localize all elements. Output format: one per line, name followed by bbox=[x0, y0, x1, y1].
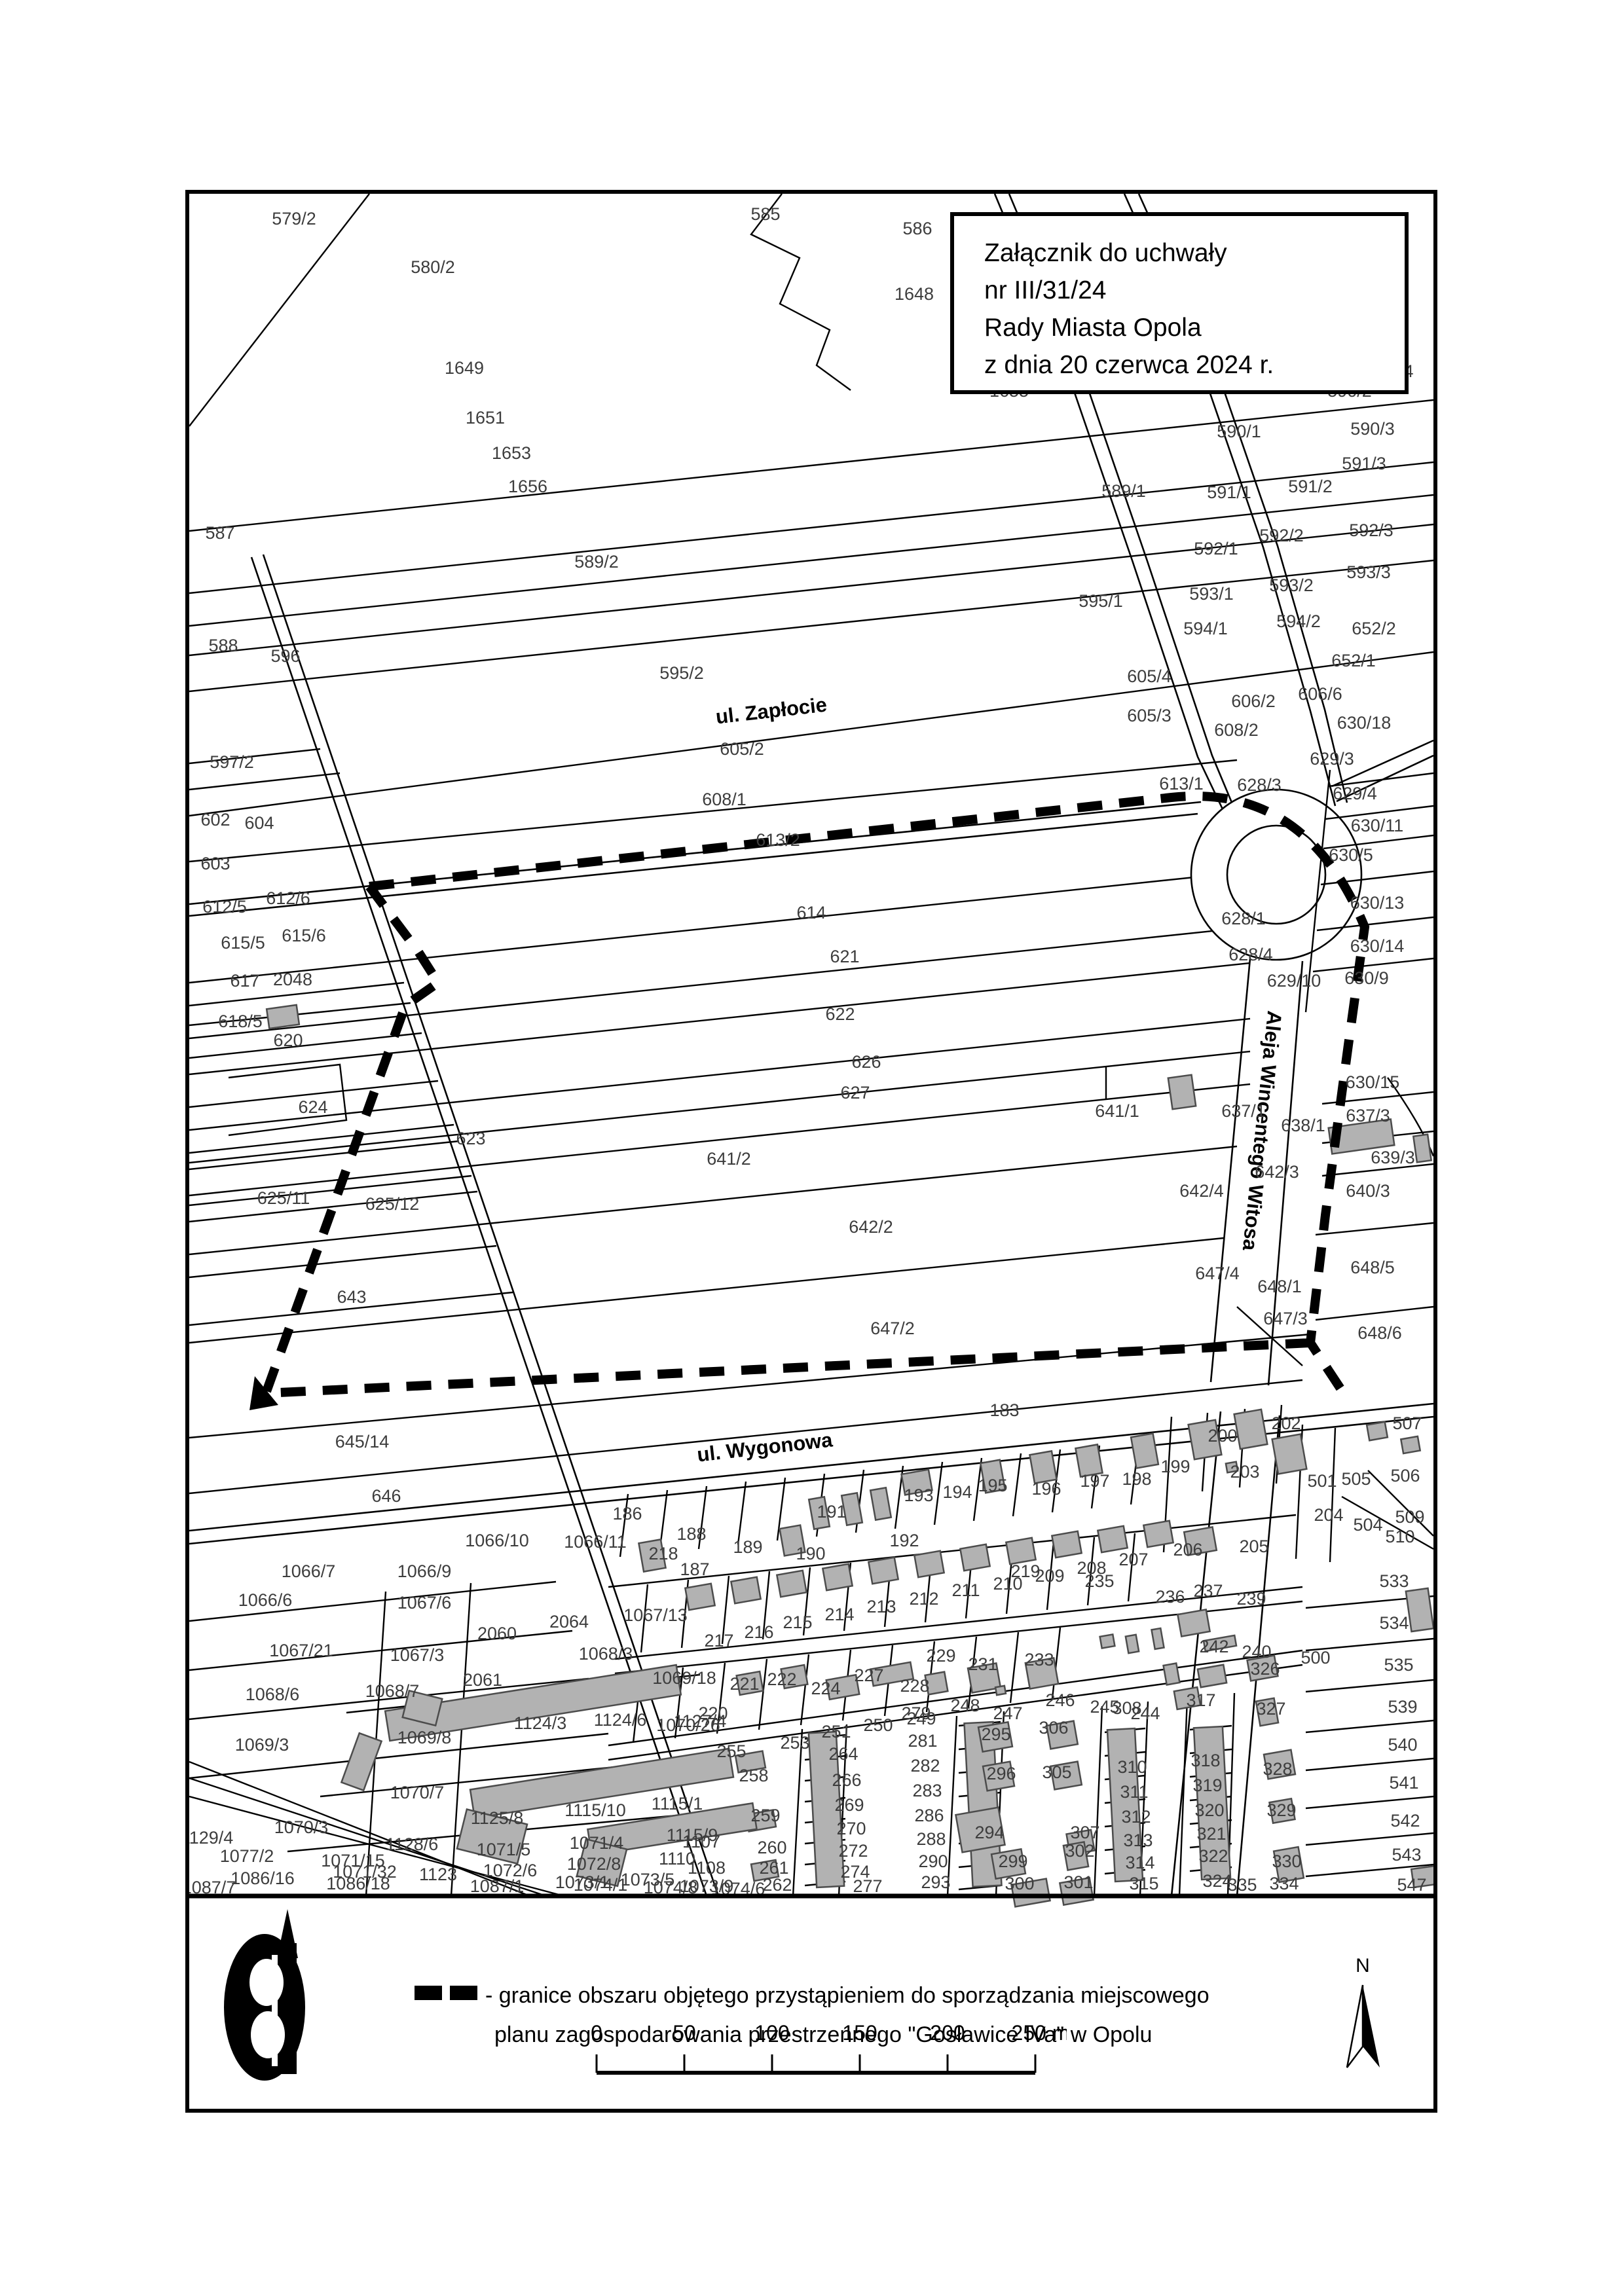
parcel-label: 322 bbox=[1198, 1846, 1228, 1866]
legend-line1: - granice obszaru objętego przystąpienie… bbox=[485, 1976, 1310, 2015]
parcel-label: 1123 bbox=[419, 1865, 457, 1884]
north-arrow-right bbox=[1363, 1985, 1380, 2068]
parcel-label: 222 bbox=[767, 1669, 796, 1689]
parcel-label: 259 bbox=[750, 1806, 780, 1825]
parcel-label: 313 bbox=[1123, 1831, 1153, 1850]
parcel-label: 592/1 bbox=[1194, 539, 1238, 558]
parcel-label: 614 bbox=[796, 903, 826, 922]
parcel-label: 637/3 bbox=[1346, 1106, 1390, 1125]
parcel-label: 645/14 bbox=[335, 1432, 390, 1451]
parcel-label: 605/2 bbox=[720, 739, 764, 759]
parcel-label: 319 bbox=[1192, 1776, 1222, 1795]
parcel-label: 235 bbox=[1084, 1571, 1114, 1591]
parcel-label: 594/1 bbox=[1183, 619, 1228, 638]
parcel-label: 647/4 bbox=[1195, 1264, 1240, 1283]
parcel-label: 1068/3 bbox=[579, 1644, 633, 1664]
parcel-label: 606/2 bbox=[1231, 691, 1276, 711]
parcel-label: 621 bbox=[830, 947, 859, 966]
parcel-label: 321 bbox=[1196, 1824, 1226, 1844]
parcel-label: 2048 bbox=[273, 970, 312, 989]
parcel-label: 1067/3 bbox=[390, 1645, 445, 1665]
parcel-label: 579/2 bbox=[272, 209, 316, 228]
parcel-label: 314 bbox=[1125, 1853, 1154, 1872]
parcel-label: 283 bbox=[912, 1781, 942, 1800]
parcel-label: 189 bbox=[733, 1537, 762, 1557]
parcel-label: 1124/3 bbox=[514, 1713, 567, 1733]
parcel-label: 624 bbox=[298, 1097, 327, 1117]
parcel-label: 250 bbox=[863, 1715, 893, 1735]
parcel-label: 1070/7 bbox=[390, 1783, 445, 1802]
parcel-label: 305 bbox=[1042, 1762, 1071, 1782]
parcel-label: 630/11 bbox=[1351, 816, 1404, 835]
parcel-label: 630/18 bbox=[1337, 713, 1392, 733]
parcel-label: 1067/21 bbox=[269, 1641, 333, 1660]
parcel-label: 629/3 bbox=[1310, 749, 1354, 769]
roads bbox=[189, 194, 1433, 1896]
map-canvas: ul. Zapłocieul. WygonowaAleja Wincentego… bbox=[189, 194, 1433, 2109]
parcel-label: 218 bbox=[648, 1544, 678, 1563]
parcel-label: 591/2 bbox=[1288, 477, 1333, 496]
parcel-label: 630/15 bbox=[1346, 1072, 1400, 1092]
parcel-label: 589/2 bbox=[574, 552, 619, 572]
parcel-label: 1071/4 bbox=[570, 1833, 624, 1853]
parcel-label: 197 bbox=[1080, 1471, 1109, 1491]
parcel-label: 296 bbox=[986, 1764, 1016, 1783]
parcel-label: 335 bbox=[1227, 1875, 1257, 1895]
title-line: z dnia 20 czerwca 2024 r. bbox=[984, 346, 1392, 384]
parcel-label: 504 bbox=[1353, 1515, 1382, 1535]
parcel-label: 628/4 bbox=[1228, 945, 1273, 964]
parcel-label: 1066/6 bbox=[238, 1590, 293, 1610]
parcel-label: 603 bbox=[200, 854, 230, 873]
parcel-label: 585 bbox=[750, 204, 780, 224]
parcel-label: 602 bbox=[200, 810, 230, 829]
parcel-label: 272 bbox=[838, 1841, 868, 1861]
parcel-label: 219 bbox=[1010, 1561, 1040, 1581]
parcel-label: 237 bbox=[1193, 1581, 1223, 1601]
parcel-label: 317 bbox=[1186, 1690, 1215, 1710]
parcel-label: 1068/6 bbox=[246, 1685, 300, 1704]
north-arrow: N bbox=[1329, 1955, 1407, 2079]
parcel-label: 638/1 bbox=[1281, 1116, 1325, 1135]
parcel-label: 646 bbox=[371, 1486, 401, 1506]
parcel-label: 647/3 bbox=[1263, 1309, 1308, 1328]
parcel-label: 648/1 bbox=[1257, 1277, 1302, 1296]
parcel-label: 591/3 bbox=[1342, 454, 1386, 473]
parcel-label: 264 bbox=[828, 1744, 858, 1764]
parcel-label: 1648 bbox=[895, 284, 934, 304]
scale-ticks bbox=[597, 2054, 1035, 2073]
parcel-label: 623 bbox=[456, 1129, 485, 1148]
parcel-label: 612/6 bbox=[266, 888, 310, 908]
parcel-label: 540 bbox=[1388, 1735, 1417, 1755]
page: { "title_box": { "lines": ["Załącznik do… bbox=[0, 0, 1624, 2296]
parcel-label: 606/6 bbox=[1298, 684, 1342, 704]
parcel-label: 1074/1 bbox=[574, 1875, 628, 1895]
parcel-label: 543 bbox=[1392, 1845, 1421, 1865]
parcel-label: 192 bbox=[889, 1531, 919, 1550]
parcel-label: 266 bbox=[832, 1770, 861, 1790]
parcel-label: 1069/18 bbox=[652, 1668, 716, 1688]
parcel-label: 242 bbox=[1199, 1637, 1228, 1656]
parcel-label: 1066/11 bbox=[564, 1532, 627, 1552]
parcel-label: 629/4 bbox=[1333, 784, 1377, 803]
parcel-label: 628/1 bbox=[1221, 909, 1266, 928]
parcel-label: 293 bbox=[921, 1872, 950, 1892]
parcel-label: 1086/16 bbox=[231, 1868, 295, 1888]
parcel-label: 307 bbox=[1070, 1823, 1099, 1842]
parcel-label: 246 bbox=[1045, 1690, 1075, 1710]
parcel-label: 247 bbox=[993, 1704, 1022, 1723]
parcel-label: 207 bbox=[1118, 1550, 1148, 1569]
parcel-label: 233 bbox=[1024, 1650, 1054, 1669]
parcel-label: 302 bbox=[1065, 1841, 1094, 1861]
parcel-label: 593/2 bbox=[1269, 575, 1314, 595]
parcel-label: 1087/1 bbox=[470, 1876, 525, 1896]
parcel-label: 196 bbox=[1031, 1479, 1061, 1499]
parcel-label: 215 bbox=[783, 1613, 812, 1632]
parcel-label: 625/11 bbox=[257, 1188, 310, 1208]
parcel-label: 310 bbox=[1117, 1757, 1147, 1777]
parcel-label: 652/2 bbox=[1352, 619, 1396, 638]
north-arrow-left bbox=[1347, 1985, 1363, 2068]
parcel-label: 308 bbox=[1112, 1698, 1141, 1718]
parcel-label: 202 bbox=[1271, 1413, 1301, 1433]
parcel-label: 212 bbox=[909, 1589, 938, 1609]
parcel-label: 587 bbox=[205, 523, 234, 543]
parcel-label: 595/2 bbox=[659, 663, 704, 683]
parcel-label: 604 bbox=[244, 813, 274, 833]
parcel-label: 279 bbox=[901, 1704, 931, 1723]
parcel-label: 1653 bbox=[492, 443, 531, 463]
parcel-label: 191 bbox=[817, 1502, 846, 1522]
parcel-label: 1115/10 bbox=[564, 1800, 626, 1820]
parcel-label: 617 bbox=[230, 971, 259, 991]
parcel-label: 193 bbox=[904, 1485, 933, 1505]
parcel-label: 258 bbox=[739, 1766, 768, 1785]
parcel-label: 330 bbox=[1272, 1851, 1301, 1871]
parcel-label: 612/5 bbox=[202, 897, 247, 917]
parcel-label: 1115/1 bbox=[652, 1794, 703, 1813]
parcel-label: 642/4 bbox=[1179, 1181, 1224, 1201]
parcel-label: 620 bbox=[273, 1030, 303, 1050]
street-labels: ul. Zapłocieul. WygonowaAleja Wincentego… bbox=[696, 693, 1286, 1467]
parcel-label: 626 bbox=[851, 1052, 881, 1072]
parcel-label: 270 bbox=[836, 1819, 866, 1838]
parcel-label: 262 bbox=[762, 1875, 792, 1895]
parcel-label: 534 bbox=[1379, 1613, 1409, 1633]
parcel-label: 190 bbox=[796, 1544, 825, 1563]
parcel-label: 312 bbox=[1121, 1807, 1151, 1827]
parcel-label: 224 bbox=[811, 1679, 840, 1698]
parcel-label: 592/3 bbox=[1349, 520, 1393, 540]
parcel-label: 630/14 bbox=[1350, 936, 1405, 956]
parcel-label: 507 bbox=[1392, 1413, 1422, 1433]
parcel-label: 326 bbox=[1250, 1659, 1280, 1679]
parcel-label: 640/3 bbox=[1346, 1181, 1390, 1201]
parcel-label: 255 bbox=[716, 1741, 746, 1761]
parcel-label: 2060 bbox=[477, 1624, 517, 1643]
parcel-label: 2064 bbox=[549, 1612, 589, 1631]
parcel-label: 188 bbox=[676, 1524, 706, 1544]
parcel-label: 1651 bbox=[466, 408, 505, 428]
scale-tick-label: 0 bbox=[591, 2021, 602, 2045]
parcel-label: 1067/13 bbox=[623, 1605, 688, 1625]
parcel-label: 294 bbox=[974, 1823, 1004, 1842]
parcel-label: 506 bbox=[1390, 1466, 1420, 1485]
parcel-label: 1656 bbox=[508, 477, 547, 496]
parcel-label: 200 bbox=[1208, 1426, 1237, 1446]
parcel-label: 1086/18 bbox=[326, 1874, 390, 1893]
parcel-label: 1127/4 bbox=[674, 1711, 727, 1731]
parcel-label: 509 bbox=[1395, 1507, 1424, 1527]
parcel-label: 596 bbox=[270, 646, 300, 666]
parcel-label: 588 bbox=[208, 636, 238, 655]
parcel-label: 214 bbox=[824, 1605, 854, 1624]
parcel-label: 590/3 bbox=[1350, 419, 1395, 439]
parcel-label: 613/2 bbox=[756, 830, 800, 850]
parcel-label: 1069/8 bbox=[397, 1728, 452, 1747]
parcel-label: 1124/6 bbox=[594, 1710, 647, 1730]
parcel-label: 213 bbox=[866, 1597, 896, 1616]
parcel-label: 281 bbox=[908, 1731, 937, 1751]
scale-tick-label: 150 bbox=[842, 2021, 877, 2045]
parcel-label: 329 bbox=[1266, 1800, 1296, 1820]
parcel-label: 539 bbox=[1388, 1697, 1417, 1717]
parcel-label: 622 bbox=[825, 1004, 855, 1024]
parcel-label: 236 bbox=[1155, 1587, 1185, 1607]
parcel-label: 195 bbox=[978, 1476, 1007, 1495]
parcel-label: 299 bbox=[998, 1851, 1027, 1871]
parcel-label: 1071/5 bbox=[477, 1840, 531, 1859]
parcel-label: 269 bbox=[834, 1795, 864, 1815]
parcel-label: 641/2 bbox=[707, 1149, 751, 1169]
parcel-label: 618/5 bbox=[218, 1011, 263, 1031]
parcel-label: 205 bbox=[1239, 1537, 1268, 1556]
parcel-label: 533 bbox=[1379, 1571, 1409, 1591]
parcel-label: 605/3 bbox=[1127, 706, 1172, 725]
parcel-label: 327 bbox=[1256, 1699, 1285, 1719]
logo bbox=[224, 1909, 305, 2081]
parcel-label: 328 bbox=[1263, 1759, 1292, 1779]
parcel-label: 641/1 bbox=[1095, 1101, 1139, 1121]
parcel-label: 625/12 bbox=[365, 1194, 420, 1214]
parcel-label: 642/2 bbox=[849, 1217, 893, 1237]
parcel-label: 639/3 bbox=[1371, 1148, 1415, 1167]
parcel-label: 1649 bbox=[445, 358, 484, 378]
north-label: N bbox=[1356, 1955, 1370, 1977]
parcel-label: 1067/6 bbox=[397, 1593, 452, 1613]
parcel-label: 306 bbox=[1039, 1718, 1068, 1738]
parcel-label: 228 bbox=[900, 1676, 929, 1696]
street-label: ul. Zapłocie bbox=[714, 693, 828, 729]
parcel-label: 594/2 bbox=[1276, 611, 1321, 631]
parcel-label: 206 bbox=[1173, 1540, 1202, 1559]
parcel-label: 589/1 bbox=[1101, 481, 1146, 501]
parcel-label: 593/3 bbox=[1346, 562, 1391, 582]
parcel-label: 300 bbox=[1005, 1874, 1034, 1893]
parcel-label: 593/1 bbox=[1189, 584, 1234, 604]
legend-dash-icon bbox=[415, 1986, 442, 2000]
parcel-label: 211 bbox=[951, 1580, 980, 1600]
parcel-label: 648/6 bbox=[1357, 1323, 1402, 1343]
parcel-label: 221 bbox=[729, 1674, 759, 1694]
parcel-label: 183 bbox=[989, 1400, 1019, 1420]
parcel-label: 334 bbox=[1269, 1874, 1299, 1893]
parcel-label: 227 bbox=[854, 1666, 883, 1685]
parcel-label: 260 bbox=[757, 1838, 786, 1857]
street-label: Aleja Wincentego Witosa bbox=[1238, 1010, 1286, 1252]
parcel-label: 286 bbox=[914, 1806, 944, 1825]
parcel-label: 542 bbox=[1390, 1811, 1420, 1831]
parcel-label: 501 bbox=[1307, 1471, 1337, 1491]
parcel-label: 318 bbox=[1190, 1751, 1220, 1770]
parcel-label: 311 bbox=[1120, 1782, 1148, 1802]
map-frame: ul. Zapłocieul. WygonowaAleja Wincentego… bbox=[185, 190, 1437, 2113]
parcel-label: 1070/3 bbox=[274, 1817, 329, 1837]
scale-tick-label: 50 bbox=[673, 2021, 696, 2045]
title-line: Rady Miasta Opola bbox=[984, 309, 1392, 346]
parcel-label: 510 bbox=[1385, 1527, 1414, 1546]
parcel-label: 315 bbox=[1129, 1874, 1158, 1893]
parcel-label: 597/2 bbox=[210, 752, 254, 772]
parcel-label: 615/5 bbox=[221, 933, 265, 953]
parcel-label: 608/2 bbox=[1214, 720, 1259, 740]
parcel-label: 204 bbox=[1314, 1505, 1343, 1525]
parcel-label: 248 bbox=[950, 1696, 980, 1715]
parcel-label: 1108 bbox=[688, 1858, 726, 1878]
parcel-label: 580/2 bbox=[411, 257, 455, 277]
parcel-label: 590/1 bbox=[1217, 422, 1261, 441]
parcel-label: 613/1 bbox=[1159, 774, 1204, 793]
parcel-label: 608/1 bbox=[702, 790, 747, 809]
parcel-label: 630/5 bbox=[1329, 845, 1373, 865]
legend-dash-icon bbox=[450, 1986, 477, 2000]
parcel-label: 648/5 bbox=[1350, 1258, 1395, 1277]
parcel-label: 642/3 bbox=[1255, 1162, 1299, 1182]
parcel-label: 217 bbox=[704, 1631, 733, 1650]
parcel-label: 500 bbox=[1301, 1648, 1330, 1667]
scale-tick-label: 200 bbox=[930, 2021, 965, 2045]
scale-tick-label: 250 m bbox=[1012, 2021, 1067, 2045]
parcel-label: 199 bbox=[1160, 1457, 1190, 1476]
parcel-label: 605/4 bbox=[1127, 666, 1172, 686]
parcel-label: 1066/7 bbox=[282, 1561, 336, 1581]
parcel-label: 586 bbox=[902, 219, 932, 238]
parcel-label: 628/3 bbox=[1237, 775, 1282, 795]
parcel-label: 652/1 bbox=[1331, 651, 1376, 670]
parcel-label: 301 bbox=[1063, 1872, 1093, 1892]
parcel-label: 320 bbox=[1194, 1800, 1224, 1820]
parcel-label: 1077/2 bbox=[220, 1846, 274, 1866]
parcel-label: 595/1 bbox=[1079, 591, 1123, 611]
parcel-label: 1066/10 bbox=[465, 1531, 529, 1550]
title-line: nr III/31/24 bbox=[984, 272, 1392, 309]
parcel-label: 186 bbox=[612, 1504, 642, 1523]
parcel-label: 630/13 bbox=[1350, 893, 1405, 913]
parcel-label: 288 bbox=[916, 1829, 946, 1849]
parcel-label: 629/10 bbox=[1267, 971, 1321, 991]
parcel-label: 647/2 bbox=[870, 1319, 915, 1338]
parcel-label: 627 bbox=[840, 1083, 870, 1102]
parcel-label: 535 bbox=[1384, 1655, 1413, 1675]
parcel-label: 505 bbox=[1341, 1469, 1371, 1489]
parcel-label: 295 bbox=[981, 1724, 1010, 1744]
parcel-label: 1128/6 bbox=[386, 1834, 439, 1854]
parcel-label: 591/1 bbox=[1207, 483, 1251, 502]
parcel-label: 643 bbox=[337, 1287, 366, 1307]
parcel-label: 1069/3 bbox=[235, 1735, 289, 1755]
parcel-label: 630/9 bbox=[1344, 968, 1389, 988]
parcel-label: 547 bbox=[1397, 1875, 1426, 1895]
parcel-label: 239 bbox=[1236, 1589, 1266, 1609]
parcel-label: 251 bbox=[821, 1722, 851, 1741]
parcel-label: 216 bbox=[744, 1622, 773, 1642]
parcel-label: 2061 bbox=[463, 1670, 502, 1690]
parcel-label: 253 bbox=[780, 1733, 809, 1753]
parcel-label: 615/6 bbox=[282, 926, 326, 945]
parcel-label: 290 bbox=[918, 1851, 948, 1871]
parcel-label: 1125/8 bbox=[471, 1808, 524, 1828]
parcel-label: 187 bbox=[680, 1559, 709, 1579]
parcel-label: 277 bbox=[853, 1876, 882, 1896]
scale-bar: 0 50 100 150 200 250 m bbox=[582, 2020, 1067, 2079]
parcel-label: 282 bbox=[910, 1756, 940, 1776]
street-label: ul. Wygonowa bbox=[696, 1428, 834, 1466]
parcel-label: 198 bbox=[1122, 1469, 1151, 1489]
parcel-label: 1129/4 bbox=[189, 1828, 233, 1848]
parcel-label: 637/1 bbox=[1221, 1101, 1266, 1121]
title-box: Załącznik do uchwały nr III/31/24 Rady M… bbox=[950, 212, 1409, 394]
parcel-label: 229 bbox=[926, 1646, 955, 1666]
parcel-label: 231 bbox=[968, 1654, 997, 1674]
parcel-label: 541 bbox=[1389, 1773, 1418, 1793]
parcel-label: 1072/8 bbox=[567, 1854, 621, 1874]
parcel-label: 1068/7 bbox=[365, 1681, 420, 1701]
parcel-label: 1066/9 bbox=[397, 1561, 452, 1581]
parcel-label: 203 bbox=[1230, 1462, 1259, 1482]
scale-tick-label: 100 bbox=[754, 2021, 789, 2045]
parcel-label: 592/2 bbox=[1259, 526, 1304, 545]
title-line: Załącznik do uchwały bbox=[984, 234, 1392, 272]
parcel-label: 194 bbox=[942, 1482, 972, 1502]
